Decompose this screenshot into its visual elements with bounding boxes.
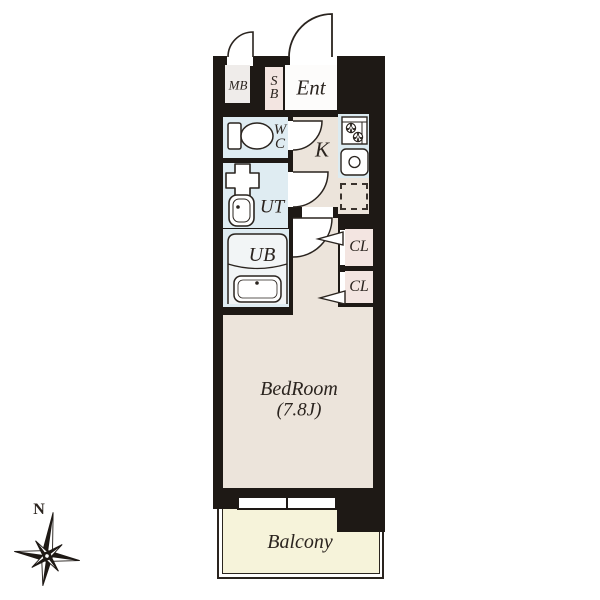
- kitchen-label: K: [315, 140, 329, 161]
- room-unit-bath: [223, 229, 289, 307]
- sb-label-line2: B: [270, 88, 279, 101]
- bedroom-size-label: (7.8J): [277, 401, 322, 420]
- wc-label: W C: [274, 123, 287, 151]
- floorplan-page: MB S B Ent W C K UT UB CL CL BedRoom (7.…: [0, 0, 600, 600]
- unit-bath-label: UB: [249, 245, 276, 265]
- wc-label-line2: C: [274, 137, 287, 151]
- mb-label: MB: [229, 79, 248, 92]
- window-left-wall-stub: [213, 488, 238, 509]
- balcony-window-right: [286, 496, 337, 510]
- compass-rose-icon: [10, 508, 86, 590]
- kitchen-counter-area: [338, 114, 369, 178]
- room-utility: [223, 163, 288, 228]
- wc-label-line1: W: [274, 123, 287, 137]
- bedroom-label: BedRoom: [260, 379, 338, 399]
- north-label: N: [33, 502, 45, 518]
- bedroom-entry-floor: [293, 218, 338, 307]
- balcony-window-left: [237, 496, 288, 510]
- bedroom-door-opening: [302, 207, 333, 218]
- corner-wall-block: [337, 490, 385, 532]
- balcony-label: Balcony: [267, 532, 333, 552]
- closet1-label: CL: [349, 239, 369, 255]
- utility-label: UT: [260, 198, 284, 217]
- kitchen-corridor-floor: [293, 117, 338, 207]
- refrigerator-dashed-outline: [340, 183, 368, 210]
- closet2-label: CL: [349, 279, 369, 295]
- mb-door-swing-arc: [228, 32, 253, 57]
- wc-door-opening: [288, 121, 293, 150]
- utility-door-opening: [288, 172, 293, 207]
- entrance-label: Ent: [296, 78, 325, 99]
- entrance-door-swing-arc: [289, 14, 332, 57]
- sb-label: S B: [270, 75, 279, 101]
